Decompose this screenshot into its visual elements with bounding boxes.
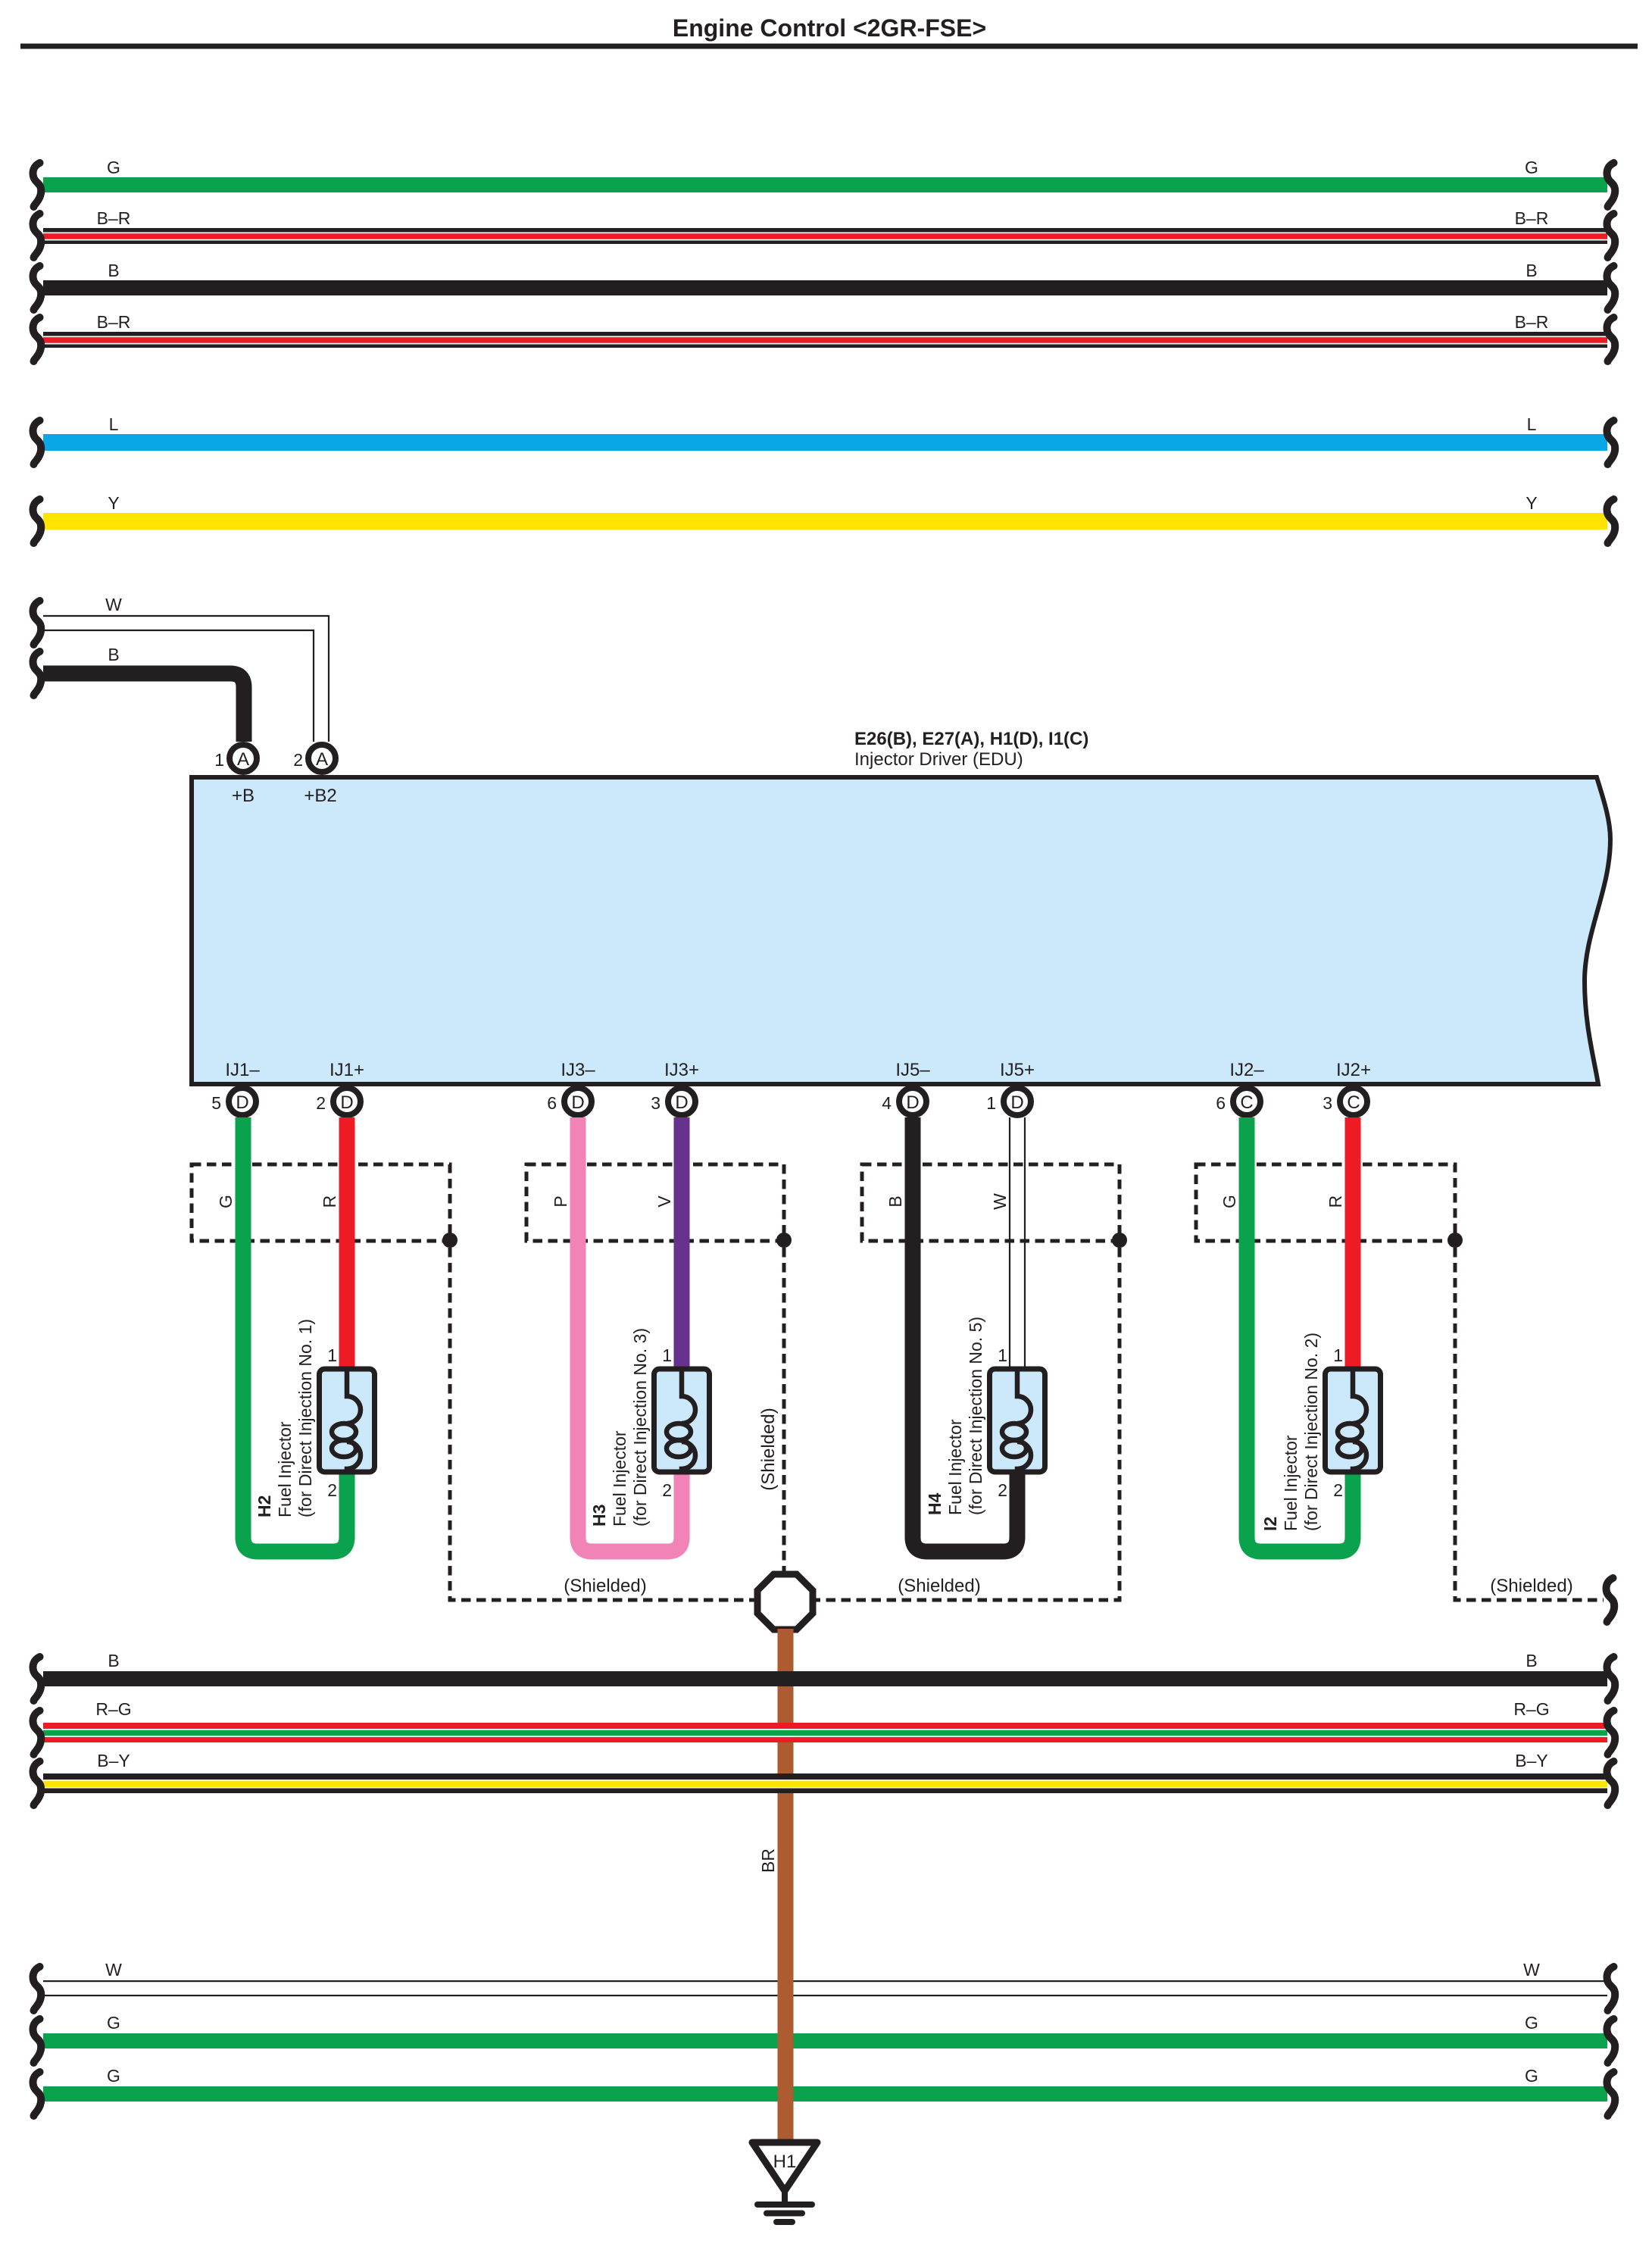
svg-text:G: G xyxy=(1219,1195,1239,1208)
svg-text:1: 1 xyxy=(1333,1345,1343,1365)
svg-text:B–Y: B–Y xyxy=(1515,1751,1547,1770)
svg-text:H1: H1 xyxy=(773,2152,797,2172)
svg-text:Fuel Injector: Fuel Injector xyxy=(1281,1435,1301,1531)
svg-text:G: G xyxy=(1525,158,1538,177)
svg-text:B: B xyxy=(108,261,119,280)
svg-text:B: B xyxy=(1526,261,1537,280)
svg-text:(Shielded): (Shielded) xyxy=(758,1408,779,1490)
svg-text:Fuel Injector: Fuel Injector xyxy=(275,1421,295,1517)
svg-text:D: D xyxy=(571,1092,584,1113)
svg-text:4: 4 xyxy=(882,1093,892,1113)
svg-text:D: D xyxy=(1010,1092,1023,1113)
svg-text:G: G xyxy=(107,2013,120,2033)
svg-text:A: A xyxy=(237,749,249,770)
svg-text:P: P xyxy=(551,1195,570,1207)
svg-text:IJ5+: IJ5+ xyxy=(1000,1060,1035,1080)
svg-text:H4: H4 xyxy=(925,1492,945,1515)
svg-text:B: B xyxy=(885,1195,905,1207)
svg-text:W: W xyxy=(1523,1960,1540,1980)
svg-text:(for Direct Injection No. 5): (for Direct Injection No. 5) xyxy=(966,1317,985,1515)
svg-text:IJ1+: IJ1+ xyxy=(329,1060,364,1080)
svg-text:D: D xyxy=(340,1092,353,1113)
svg-text:G: G xyxy=(107,158,120,177)
svg-text:I2: I2 xyxy=(1260,1517,1280,1531)
svg-text:Y: Y xyxy=(108,493,119,513)
svg-text:B–R: B–R xyxy=(1515,208,1549,228)
svg-text:1: 1 xyxy=(327,1345,337,1365)
svg-text:B–R: B–R xyxy=(97,312,131,332)
svg-text:V: V xyxy=(654,1195,674,1208)
svg-text:IJ3+: IJ3+ xyxy=(664,1060,699,1080)
svg-text:2: 2 xyxy=(1333,1480,1343,1500)
svg-text:D: D xyxy=(236,1092,248,1113)
svg-text:D: D xyxy=(675,1092,688,1113)
svg-text:(Shielded): (Shielded) xyxy=(1490,1576,1572,1596)
svg-text:IJ1–: IJ1– xyxy=(225,1060,260,1080)
svg-text:IJ2+: IJ2+ xyxy=(1336,1060,1371,1080)
svg-text:1: 1 xyxy=(662,1345,672,1365)
svg-text:(for Direct Injection No. 2): (for Direct Injection No. 2) xyxy=(1301,1333,1321,1531)
svg-text:W: W xyxy=(105,1960,122,1980)
svg-text:Fuel Injector: Fuel Injector xyxy=(610,1430,629,1527)
svg-text:R: R xyxy=(320,1195,339,1208)
svg-text:W: W xyxy=(990,1193,1010,1210)
svg-text:2: 2 xyxy=(316,1093,326,1113)
svg-text:5: 5 xyxy=(211,1093,221,1113)
svg-text:R–G: R–G xyxy=(95,1699,131,1719)
svg-text:Fuel Injector: Fuel Injector xyxy=(945,1419,965,1515)
svg-text:3: 3 xyxy=(1323,1093,1332,1113)
svg-text:L: L xyxy=(1527,414,1537,434)
svg-text:R: R xyxy=(1326,1195,1345,1208)
svg-text:(Shielded): (Shielded) xyxy=(564,1576,646,1596)
svg-text:+B: +B xyxy=(232,786,255,806)
svg-text:C: C xyxy=(1347,1092,1360,1113)
svg-text:2: 2 xyxy=(998,1480,1007,1500)
svg-text:6: 6 xyxy=(1216,1093,1226,1113)
svg-text:C: C xyxy=(1240,1092,1253,1113)
svg-text:2: 2 xyxy=(327,1480,337,1500)
svg-text:H2: H2 xyxy=(255,1495,274,1517)
svg-text:B–Y: B–Y xyxy=(97,1751,130,1770)
svg-text:BR: BR xyxy=(758,1848,778,1873)
svg-text:D: D xyxy=(906,1092,919,1113)
svg-text:IJ2–: IJ2– xyxy=(1229,1060,1264,1080)
svg-text:E26(B), E27(A), H1(D), I1(C): E26(B), E27(A), H1(D), I1(C) xyxy=(854,729,1088,749)
svg-text:Injector Driver (EDU): Injector Driver (EDU) xyxy=(854,749,1023,770)
svg-text:2: 2 xyxy=(662,1480,672,1500)
svg-text:(for Direct Injection No. 1): (for Direct Injection No. 1) xyxy=(295,1319,315,1517)
svg-text:B: B xyxy=(108,645,119,664)
svg-text:G: G xyxy=(1525,2066,1538,2086)
svg-text:1: 1 xyxy=(986,1093,996,1113)
svg-text:(Shielded): (Shielded) xyxy=(898,1576,980,1596)
svg-text:W: W xyxy=(105,595,122,614)
svg-text:6: 6 xyxy=(547,1093,557,1113)
svg-text:1: 1 xyxy=(214,750,224,770)
svg-text:G: G xyxy=(107,2066,120,2086)
svg-text:+B2: +B2 xyxy=(304,786,336,806)
svg-text:L: L xyxy=(109,414,119,434)
svg-text:B: B xyxy=(1526,1651,1537,1670)
svg-text:IJ5–: IJ5– xyxy=(895,1060,930,1080)
svg-text:G: G xyxy=(216,1195,236,1208)
svg-text:Y: Y xyxy=(1526,493,1537,513)
svg-text:Engine Control <2GR-FSE>: Engine Control <2GR-FSE> xyxy=(673,14,986,42)
svg-text:G: G xyxy=(1525,2013,1538,2033)
svg-text:2: 2 xyxy=(293,750,303,770)
svg-text:B–R: B–R xyxy=(97,208,131,228)
svg-text:B: B xyxy=(108,1651,119,1670)
svg-text:IJ3–: IJ3– xyxy=(561,1060,595,1080)
svg-text:B–R: B–R xyxy=(1515,312,1549,332)
svg-text:H3: H3 xyxy=(589,1505,609,1527)
svg-text:1: 1 xyxy=(998,1345,1007,1365)
svg-text:3: 3 xyxy=(651,1093,660,1113)
svg-text:A: A xyxy=(316,749,328,770)
svg-text:R–G: R–G xyxy=(1513,1699,1549,1719)
svg-text:(for Direct Injection No. 3): (for Direct Injection No. 3) xyxy=(630,1328,650,1527)
